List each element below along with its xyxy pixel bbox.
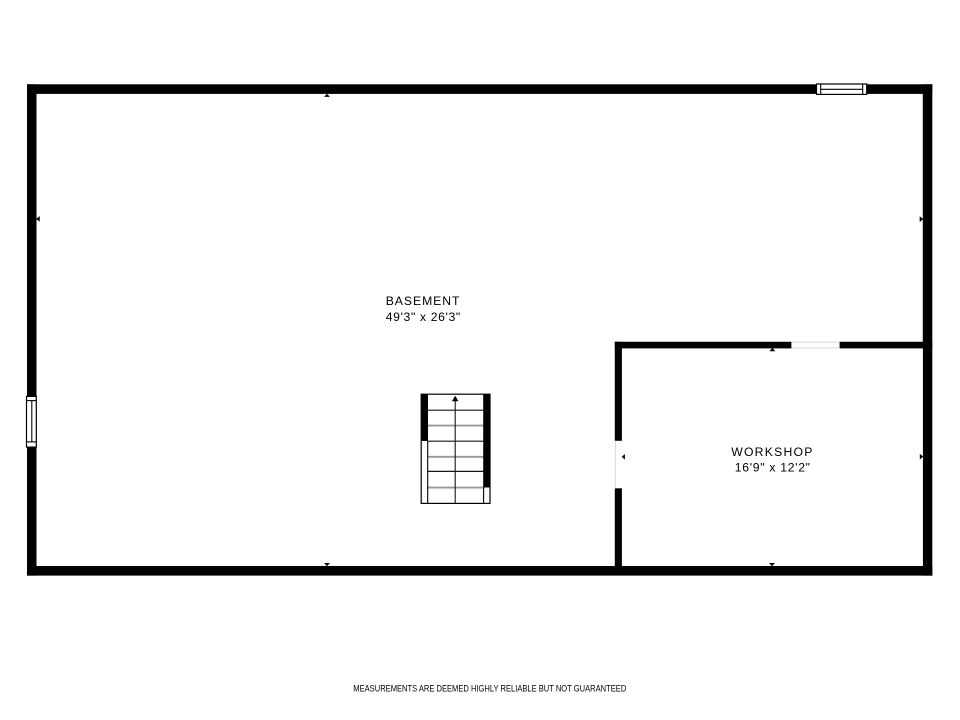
svg-text:16'9" x 12'2": 16'9" x 12'2" xyxy=(735,461,810,475)
svg-text:WORKSHOP: WORKSHOP xyxy=(731,445,812,459)
svg-text:MEASUREMENTS ARE DEEMED HIGHLY: MEASUREMENTS ARE DEEMED HIGHLY RELIABLE … xyxy=(353,684,626,694)
svg-text:49'3" x 26'3": 49'3" x 26'3" xyxy=(386,310,461,324)
svg-text:BASEMENT: BASEMENT xyxy=(386,294,460,308)
